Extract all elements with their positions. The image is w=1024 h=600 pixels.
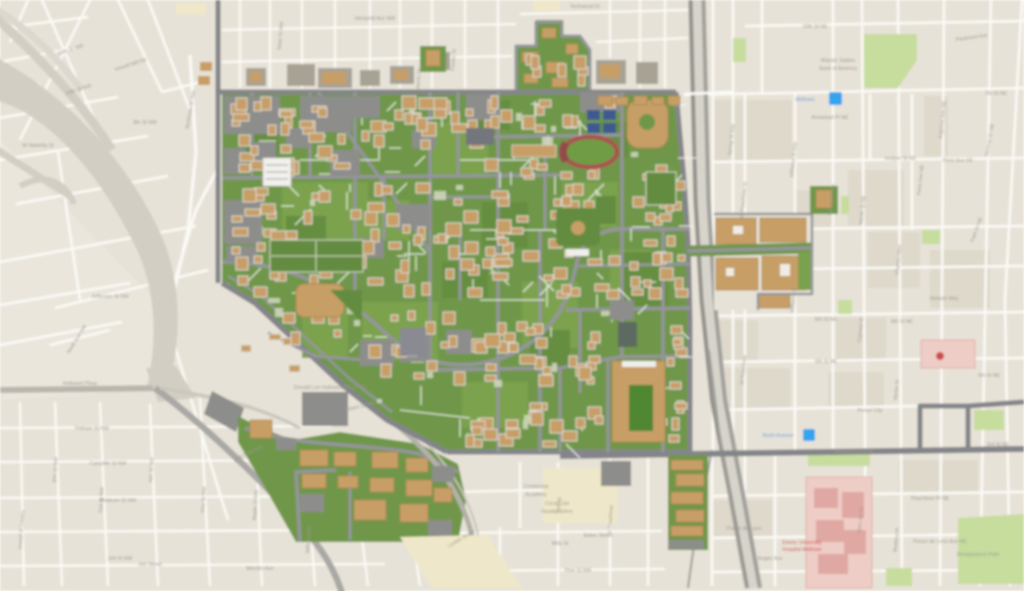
- svg-text:7th St NE: 7th St NE: [985, 91, 1008, 97]
- svg-text:W Marietta St: W Marietta St: [22, 143, 54, 149]
- svg-text:Bank of America: Bank of America: [819, 66, 857, 72]
- svg-text:Vedado Way: Vedado Way: [929, 296, 959, 302]
- svg-text:Techwood Dr: Techwood Dr: [570, 4, 601, 10]
- svg-text:3rd St NE: 3rd St NE: [987, 442, 1010, 448]
- svg-text:10th St NE: 10th St NE: [802, 24, 828, 30]
- svg-text:8th St NW: 8th St NW: [133, 120, 157, 126]
- svg-text:Penn Ave NE: Penn Ave NE: [943, 158, 974, 164]
- svg-text:North Avenue: North Avenue: [762, 433, 793, 439]
- svg-text:Mills St: Mills St: [552, 541, 569, 547]
- svg-text:Spring: Spring: [555, 497, 562, 512]
- svg-text:Atlantic Station: Atlantic Station: [821, 58, 856, 64]
- svg-text:Midtown: Midtown: [795, 97, 814, 103]
- svg-text:Pine St NW: Pine St NW: [565, 568, 592, 574]
- svg-text:Meldrum St NW: Meldrum St NW: [100, 498, 137, 504]
- svg-text:Hospital Midtown: Hospital Midtown: [782, 547, 822, 553]
- svg-text:Ponce City: Ponce City: [857, 408, 882, 414]
- svg-text:North Avenue NE: North Avenue NE: [835, 449, 876, 455]
- svg-text:Merritts Ave: Merritts Ave: [246, 566, 273, 572]
- svg-text:Peachtree Pl NE: Peachtree Pl NE: [911, 496, 950, 502]
- svg-text:Hollowell Pkwy: Hollowell Pkwy: [63, 381, 98, 387]
- svg-text:Pelham St NW: Pelham St NW: [75, 426, 109, 432]
- svg-text:6th St NE: 6th St NE: [815, 317, 838, 323]
- svg-text:Juniper St NE: Juniper St NE: [884, 156, 917, 162]
- svg-text:Renaissance Park: Renaissance Park: [957, 552, 1000, 558]
- svg-text:Emory University: Emory University: [782, 540, 822, 546]
- svg-text:Angier Ave: Angier Ave: [758, 556, 783, 562]
- svg-text:Jett Street: Jett Street: [138, 562, 162, 568]
- svg-text:Armstead Pl NE: Armstead Pl NE: [812, 115, 849, 121]
- svg-text:Ponce de Leon Ave NE: Ponce de Leon Ave NE: [913, 539, 967, 545]
- svg-text:Ponce de Leon: Ponce de Leon: [727, 526, 762, 532]
- svg-text:Donald Lee Hollowell Pkwy NW: Donald Lee Hollowell Pkwy NW: [294, 385, 367, 391]
- svg-text:Academy: Academy: [525, 492, 547, 498]
- svg-text:Centennial: Centennial: [524, 484, 549, 490]
- svg-text:Camplife St NW: Camplife St NW: [90, 461, 127, 467]
- svg-text:5th St NE: 5th St NE: [815, 359, 838, 365]
- svg-text:Jefferson St NW: Jefferson St NW: [91, 294, 129, 300]
- svg-text:4th St NE: 4th St NE: [978, 373, 1001, 379]
- svg-text:Jett St NW: Jett St NW: [108, 556, 133, 562]
- svg-text:Hemphill Ave NW: Hemphill Ave NW: [355, 16, 395, 22]
- svg-text:8th St NE: 8th St NE: [891, 319, 914, 325]
